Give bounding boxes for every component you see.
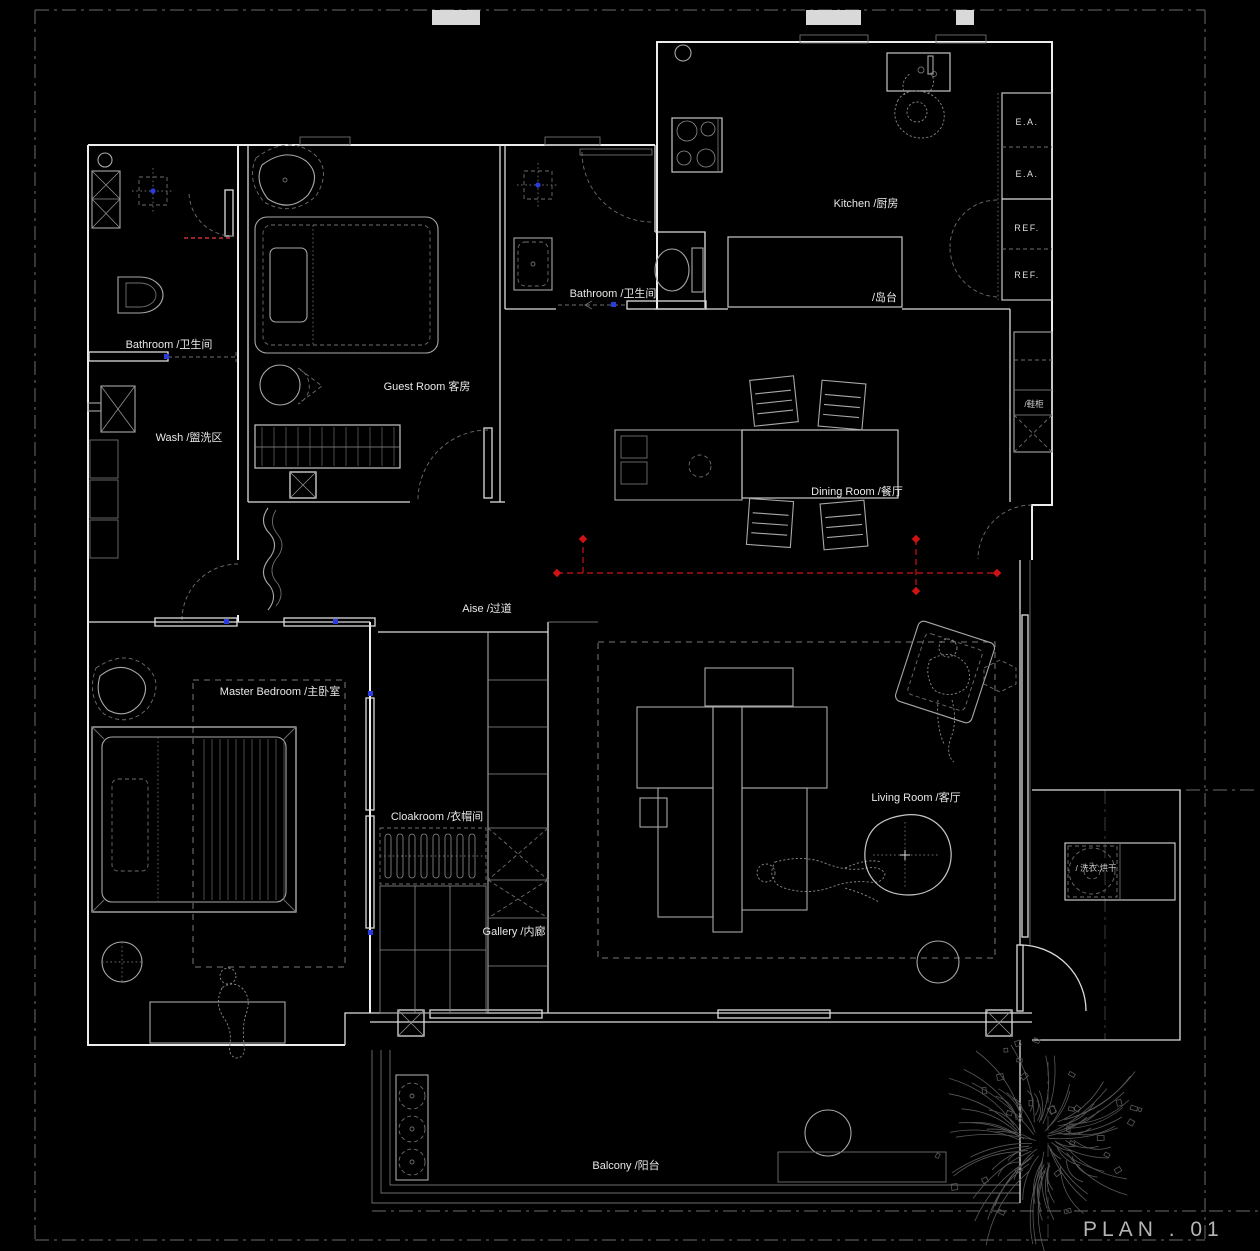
label-laundry: / 洗衣.烘干 <box>1075 863 1117 873</box>
blue-door-marker <box>611 302 616 307</box>
plan-title: PLAN . 01 <box>1083 1218 1224 1241</box>
label-ea-bottom: E.A. <box>1015 169 1038 179</box>
label-bathroom-2: Bathroom /卫生间 <box>570 286 657 300</box>
top-border-pier-2 <box>806 10 861 25</box>
label-cloakroom: Cloakroom /衣帽间 <box>391 809 483 823</box>
label-gallery: Gallery /内廊 <box>483 924 546 938</box>
blue-door-marker <box>368 930 373 935</box>
label-master-bedroom: Master Bedroom /主卧室 <box>220 684 340 698</box>
top-border-pier-1 <box>432 10 480 25</box>
blue-drain-dot-bath2 <box>535 182 540 187</box>
label-bathroom-1: Bathroom /卫生间 <box>126 337 213 351</box>
cad-floor-plan-sheet: Bathroom /卫生间 Wash /盥洗区 Guest Room 客房 Ba… <box>0 0 1260 1251</box>
label-kitchen: Kitchen /厨房 <box>834 197 899 210</box>
label-ref-bottom: REF. <box>1014 270 1040 280</box>
label-dining-room: Dining Room /餐厅 <box>811 484 903 498</box>
blue-drain-dot-bath1 <box>150 188 155 193</box>
label-ea-top: E.A. <box>1015 117 1038 127</box>
blue-door-marker <box>333 619 338 624</box>
label-ref-top: REF. <box>1014 223 1040 233</box>
label-shoe-cabinet: /鞋柜 <box>1024 399 1044 409</box>
label-guest-room: Guest Room 客房 <box>384 379 471 393</box>
top-border-pier-3 <box>956 10 974 25</box>
label-balcony: Balcony /阳台 <box>592 1158 659 1172</box>
label-island: /岛台 <box>872 290 897 304</box>
blue-door-marker <box>164 354 169 359</box>
label-aisle: Aise /过道 <box>462 601 512 615</box>
blue-door-marker <box>368 691 373 696</box>
blue-door-marker <box>224 619 229 624</box>
label-wash: Wash /盥洗区 <box>156 431 223 444</box>
label-living-room: Living Room /客厅 <box>871 790 960 804</box>
floor-plan-canvas: Bathroom /卫生间 Wash /盥洗区 Guest Room 客房 Ba… <box>0 0 1260 1251</box>
